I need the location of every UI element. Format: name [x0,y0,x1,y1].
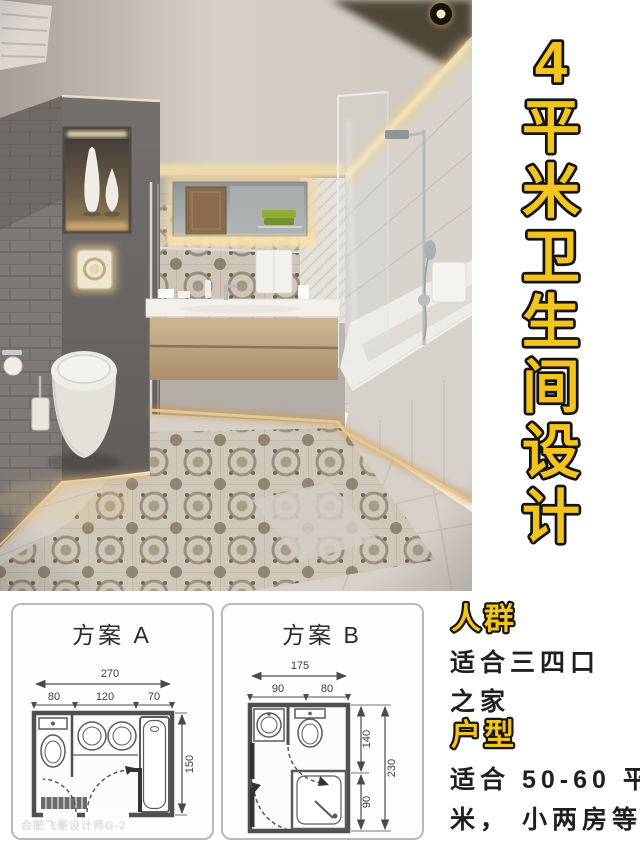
plan-a-card: 方案 A 270 80 120 70 [11,603,214,840]
plan-b-dim-right-upper: 140 [361,730,373,748]
poster: 4 平 米 卫 生 间 设 计 方案 A 270 80 120 70 [0,0,640,853]
plan-b-dim-right-lower: 90 [361,796,373,808]
plan-b-toilet [295,709,325,747]
plan-a-bathtub [140,717,169,812]
page-title: 4 平 米 卫 生 间 设 计 [472,0,640,591]
plan-b-card: 方案 B 175 90 80 [221,603,424,840]
title-char: 米 [522,160,580,225]
plan-b-dim-seg1: 90 [272,683,284,695]
plan-a-toilet [39,718,67,767]
svg-text:人群: 人群 [451,603,517,636]
layout-line-2: 米， 小两房等 [450,800,640,836]
title-char: 4 [535,30,567,95]
layout-line-1: 适合 50-60 平 [450,760,640,796]
title-char: 平 [522,95,580,160]
plan-b-basin [254,709,284,741]
watermark: 合肥飞墨设计师G-2 [21,817,126,833]
audience-label: 人群 [447,596,567,640]
title-char: 间 [522,355,580,420]
plan-a-bench [41,797,87,809]
title-char: 生 [522,290,580,355]
plan-a-dim-seg3: 70 [148,691,160,703]
plan-b-dim-total-h: 230 [386,759,398,777]
plan-a-dim-total: 270 [101,668,119,680]
layout-label: 户型 [447,712,567,756]
title-char: 计 [522,485,580,550]
bathroom-photo [0,0,472,591]
plan-b-shower [292,771,346,829]
audience-line-1: 适合三四口 [450,643,600,679]
plan-b-dim-seg2: 80 [321,683,333,695]
plan-a-dim-seg1: 80 [48,691,60,703]
plan-b-dim-total-w: 175 [291,660,309,672]
plan-a-dim-height: 150 [184,755,196,773]
svg-text:户型: 户型 [451,719,517,752]
plan-a-dim-seg2: 120 [96,691,114,703]
plan-a-title: 方案 A [72,622,152,648]
plan-b-title: 方案 B [282,622,362,648]
title-char: 卫 [522,225,580,290]
title-char: 设 [522,420,580,485]
